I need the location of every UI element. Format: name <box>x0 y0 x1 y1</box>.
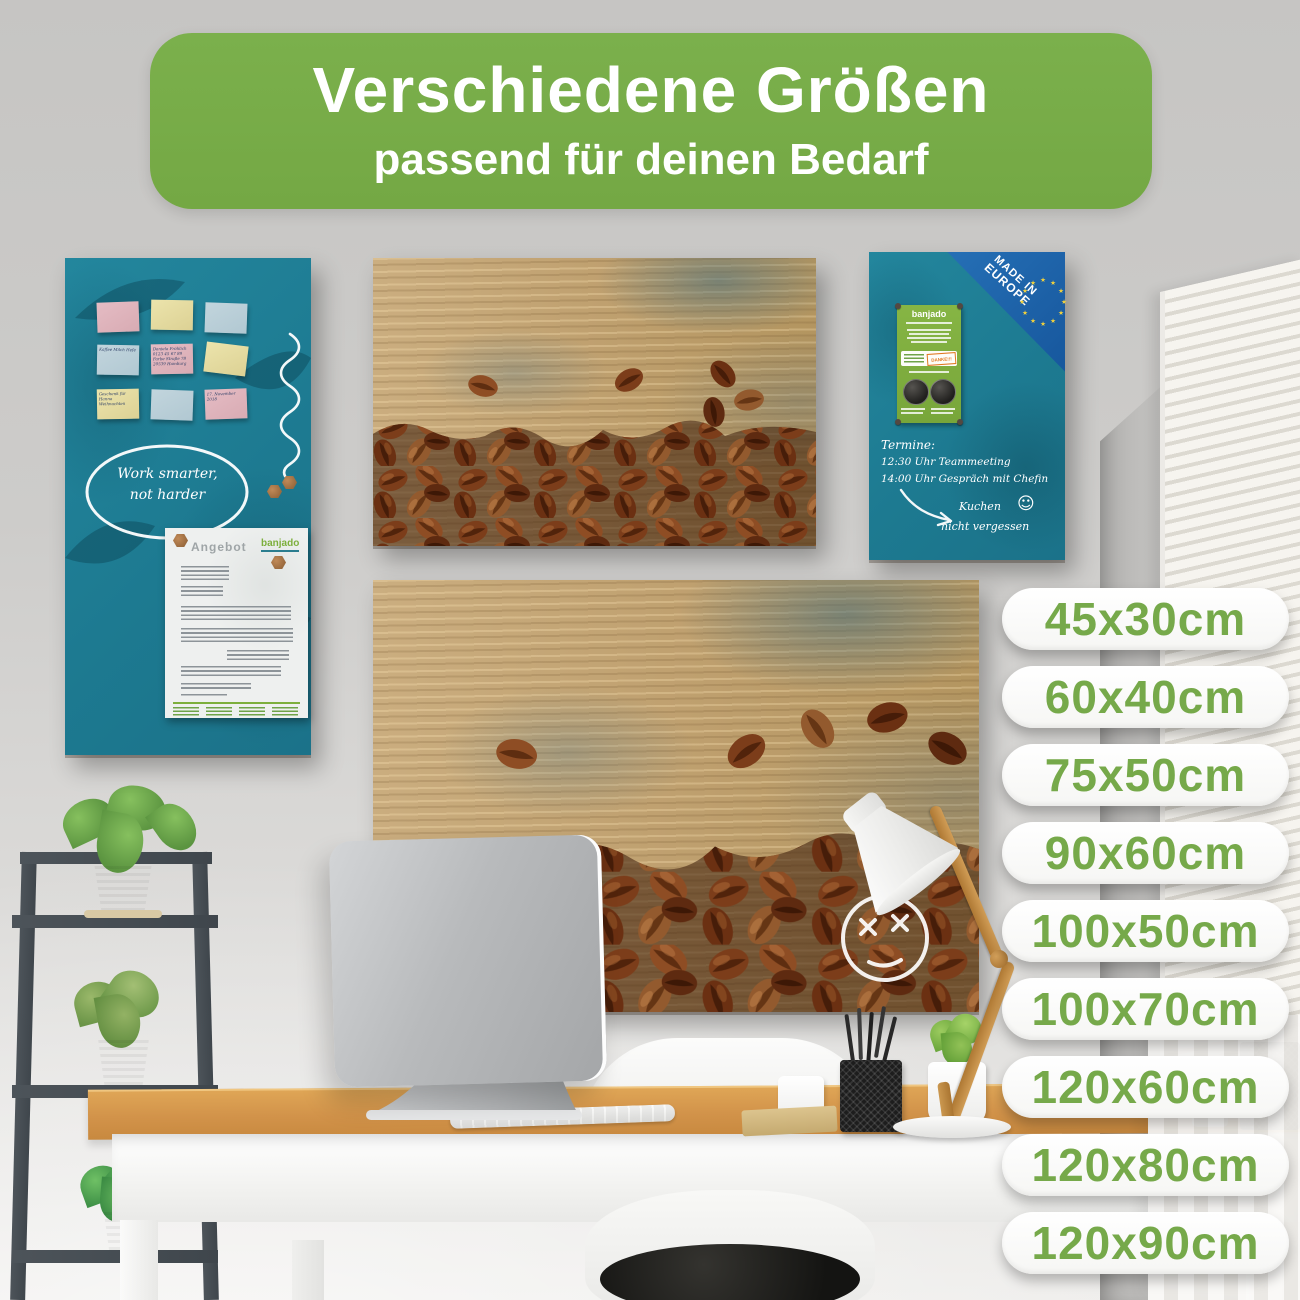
sticky-note <box>151 300 194 331</box>
svg-text:★: ★ <box>1030 279 1036 287</box>
sticky-note-text: Daniela Fröhlich 0123 45 67 89 Farbe Str… <box>151 344 194 375</box>
svg-text:★: ★ <box>1050 317 1056 325</box>
svg-text:★: ★ <box>1058 309 1064 317</box>
document-totals <box>227 650 289 661</box>
desk-leg <box>120 1220 158 1300</box>
desk-leg <box>292 1240 324 1300</box>
size-badge: 100x50cm <box>1002 900 1289 962</box>
flyer-line <box>907 329 951 331</box>
size-badge: 120x90cm <box>1002 1212 1289 1274</box>
flyer-line <box>931 408 955 410</box>
offer-document: Angebot banjado <box>165 528 308 718</box>
banner-title: Verschiedene Größen <box>312 57 989 124</box>
size-label: 120x60cm <box>1032 1060 1260 1114</box>
kuchen-note: Kuchen <box>959 500 1001 513</box>
sticky-note: Daniela Fröhlich 0123 45 67 89 Farbe Str… <box>151 344 194 375</box>
pencil-cup <box>840 1060 902 1132</box>
svg-text:★: ★ <box>1061 298 1067 306</box>
document-footer-col <box>173 707 199 716</box>
speech-line2: not harder <box>95 485 240 506</box>
document-text-block <box>181 586 223 598</box>
magnet-dot <box>895 419 901 425</box>
document-footer-rule <box>173 702 300 704</box>
document-text-block <box>181 694 227 698</box>
product-scene: Kaffee Milch Hefe Daniela Fröhlich 0123 … <box>0 0 1300 1300</box>
board-memo-teal: Kaffee Milch Hefe Daniela Fröhlich 0123 … <box>65 258 311 755</box>
lamp-elbow-knob <box>990 950 1008 968</box>
coffee-beans <box>373 258 816 546</box>
document-footer-col <box>272 707 298 716</box>
eu-stars: ★★★ ★★★ ★★★ ★★★ <box>1015 272 1071 332</box>
header-banner: Verschiedene Größen passend für deinen B… <box>150 33 1152 209</box>
sticky-note: Geschenk für Hanna Weihnachten <box>97 389 140 420</box>
flyer-line <box>909 371 949 373</box>
flyer-line <box>901 408 925 410</box>
termine-line1: 12:30 Uhr Teammeeting <box>881 456 1011 468</box>
notebook-stack <box>741 1106 837 1137</box>
svg-text:★: ★ <box>1022 309 1028 317</box>
document-text-block <box>181 683 251 690</box>
smiley-icon: ☺ <box>1017 494 1035 514</box>
sticky-note-text: 17. November 2018 <box>204 388 247 419</box>
hex-magnet <box>173 534 188 547</box>
size-label: 100x50cm <box>1032 904 1260 958</box>
sticky-note: 17. November 2018 <box>204 388 247 419</box>
document-footer-col <box>239 707 265 716</box>
hex-magnet <box>271 556 286 569</box>
svg-text:★: ★ <box>1022 287 1028 295</box>
plant-pot <box>92 866 154 914</box>
size-label: 75x50cm <box>1045 748 1246 802</box>
document-table <box>181 628 293 645</box>
termine-line2: 14:00 Uhr Gespräch mit Chefin <box>881 473 1048 485</box>
board-coffee-small <box>373 258 816 546</box>
sticky-note <box>96 301 139 332</box>
pencil <box>844 1014 855 1066</box>
flyer-line <box>906 322 952 324</box>
sticky-note-text: Kaffee Milch Hefe <box>97 345 140 376</box>
flyer-logo: banjado <box>897 309 961 319</box>
pot-saucer <box>84 910 162 918</box>
size-badge: 45x30cm <box>1002 588 1289 650</box>
document-logo: banjado <box>261 538 299 549</box>
size-label: 45x30cm <box>1045 592 1246 646</box>
plant-pot <box>96 1040 151 1088</box>
svg-text:★: ★ <box>1040 320 1046 328</box>
size-badge: 90x60cm <box>1002 822 1289 884</box>
squiggle-doodle <box>277 332 303 478</box>
size-badge: 60x40cm <box>1002 666 1289 728</box>
size-label: 90x60cm <box>1045 826 1246 880</box>
termine-title: Termine: <box>881 438 935 452</box>
document-text-block <box>181 666 281 677</box>
dog-photo <box>903 379 929 405</box>
size-badge: 100x70cm <box>1002 978 1289 1040</box>
svg-text:★: ★ <box>1058 287 1064 295</box>
pencil <box>857 1008 863 1060</box>
sticky-note: Kaffee Milch Hefe <box>97 345 140 376</box>
nicht-vergessen-note: nicht vergessen <box>941 520 1029 533</box>
stamp-smalltext <box>904 354 924 363</box>
flyer-line <box>907 337 951 339</box>
flyer-line <box>911 341 947 343</box>
banner-subtitle: passend für deinen Bedarf <box>373 135 928 185</box>
document-title: Angebot <box>191 540 247 554</box>
pencil <box>866 1012 874 1064</box>
flyer-stamp-box: DANKE!!! <box>901 351 957 366</box>
dog-photo <box>930 379 956 405</box>
magnet-dot <box>957 419 963 425</box>
monitor-back <box>329 834 607 1087</box>
flyer-line <box>909 333 949 335</box>
sticky-note <box>203 342 248 377</box>
size-badge: 120x80cm <box>1002 1134 1289 1196</box>
sticky-note <box>204 302 247 333</box>
flyer-stamp: DANKE!!! <box>927 352 957 366</box>
size-label: 120x90cm <box>1032 1216 1260 1270</box>
logo-tagline-bar <box>261 550 299 552</box>
svg-text:★: ★ <box>1050 279 1056 287</box>
svg-text:★: ★ <box>1019 298 1025 306</box>
size-badge: 75x50cm <box>1002 744 1289 806</box>
document-text-block <box>181 606 291 623</box>
size-label: 120x80cm <box>1032 1138 1260 1192</box>
sticky-note-text: Geschenk für Hanna Weihnachten <box>97 389 140 420</box>
board-appointments: MADE IN EUROPE ★★★ ★★★ ★★★ ★★★ banjado <box>869 252 1065 560</box>
size-label: 100x70cm <box>1032 982 1260 1036</box>
size-label: 60x40cm <box>1045 670 1246 724</box>
document-text-block <box>181 566 229 581</box>
svg-text:★: ★ <box>1040 276 1046 284</box>
banjado-flyer: banjado DANKE!!! <box>897 305 961 423</box>
document-footer-col <box>206 707 232 716</box>
flyer-line <box>931 412 953 414</box>
speech-line1: Work smarter, <box>95 464 240 485</box>
svg-text:★: ★ <box>1030 317 1036 325</box>
sticky-note <box>150 389 193 420</box>
lamp-base <box>893 1116 1011 1138</box>
speech-bubble-text: Work smarter, not harder <box>95 464 240 506</box>
flyer-line <box>901 412 923 414</box>
size-badge: 120x60cm <box>1002 1056 1289 1118</box>
